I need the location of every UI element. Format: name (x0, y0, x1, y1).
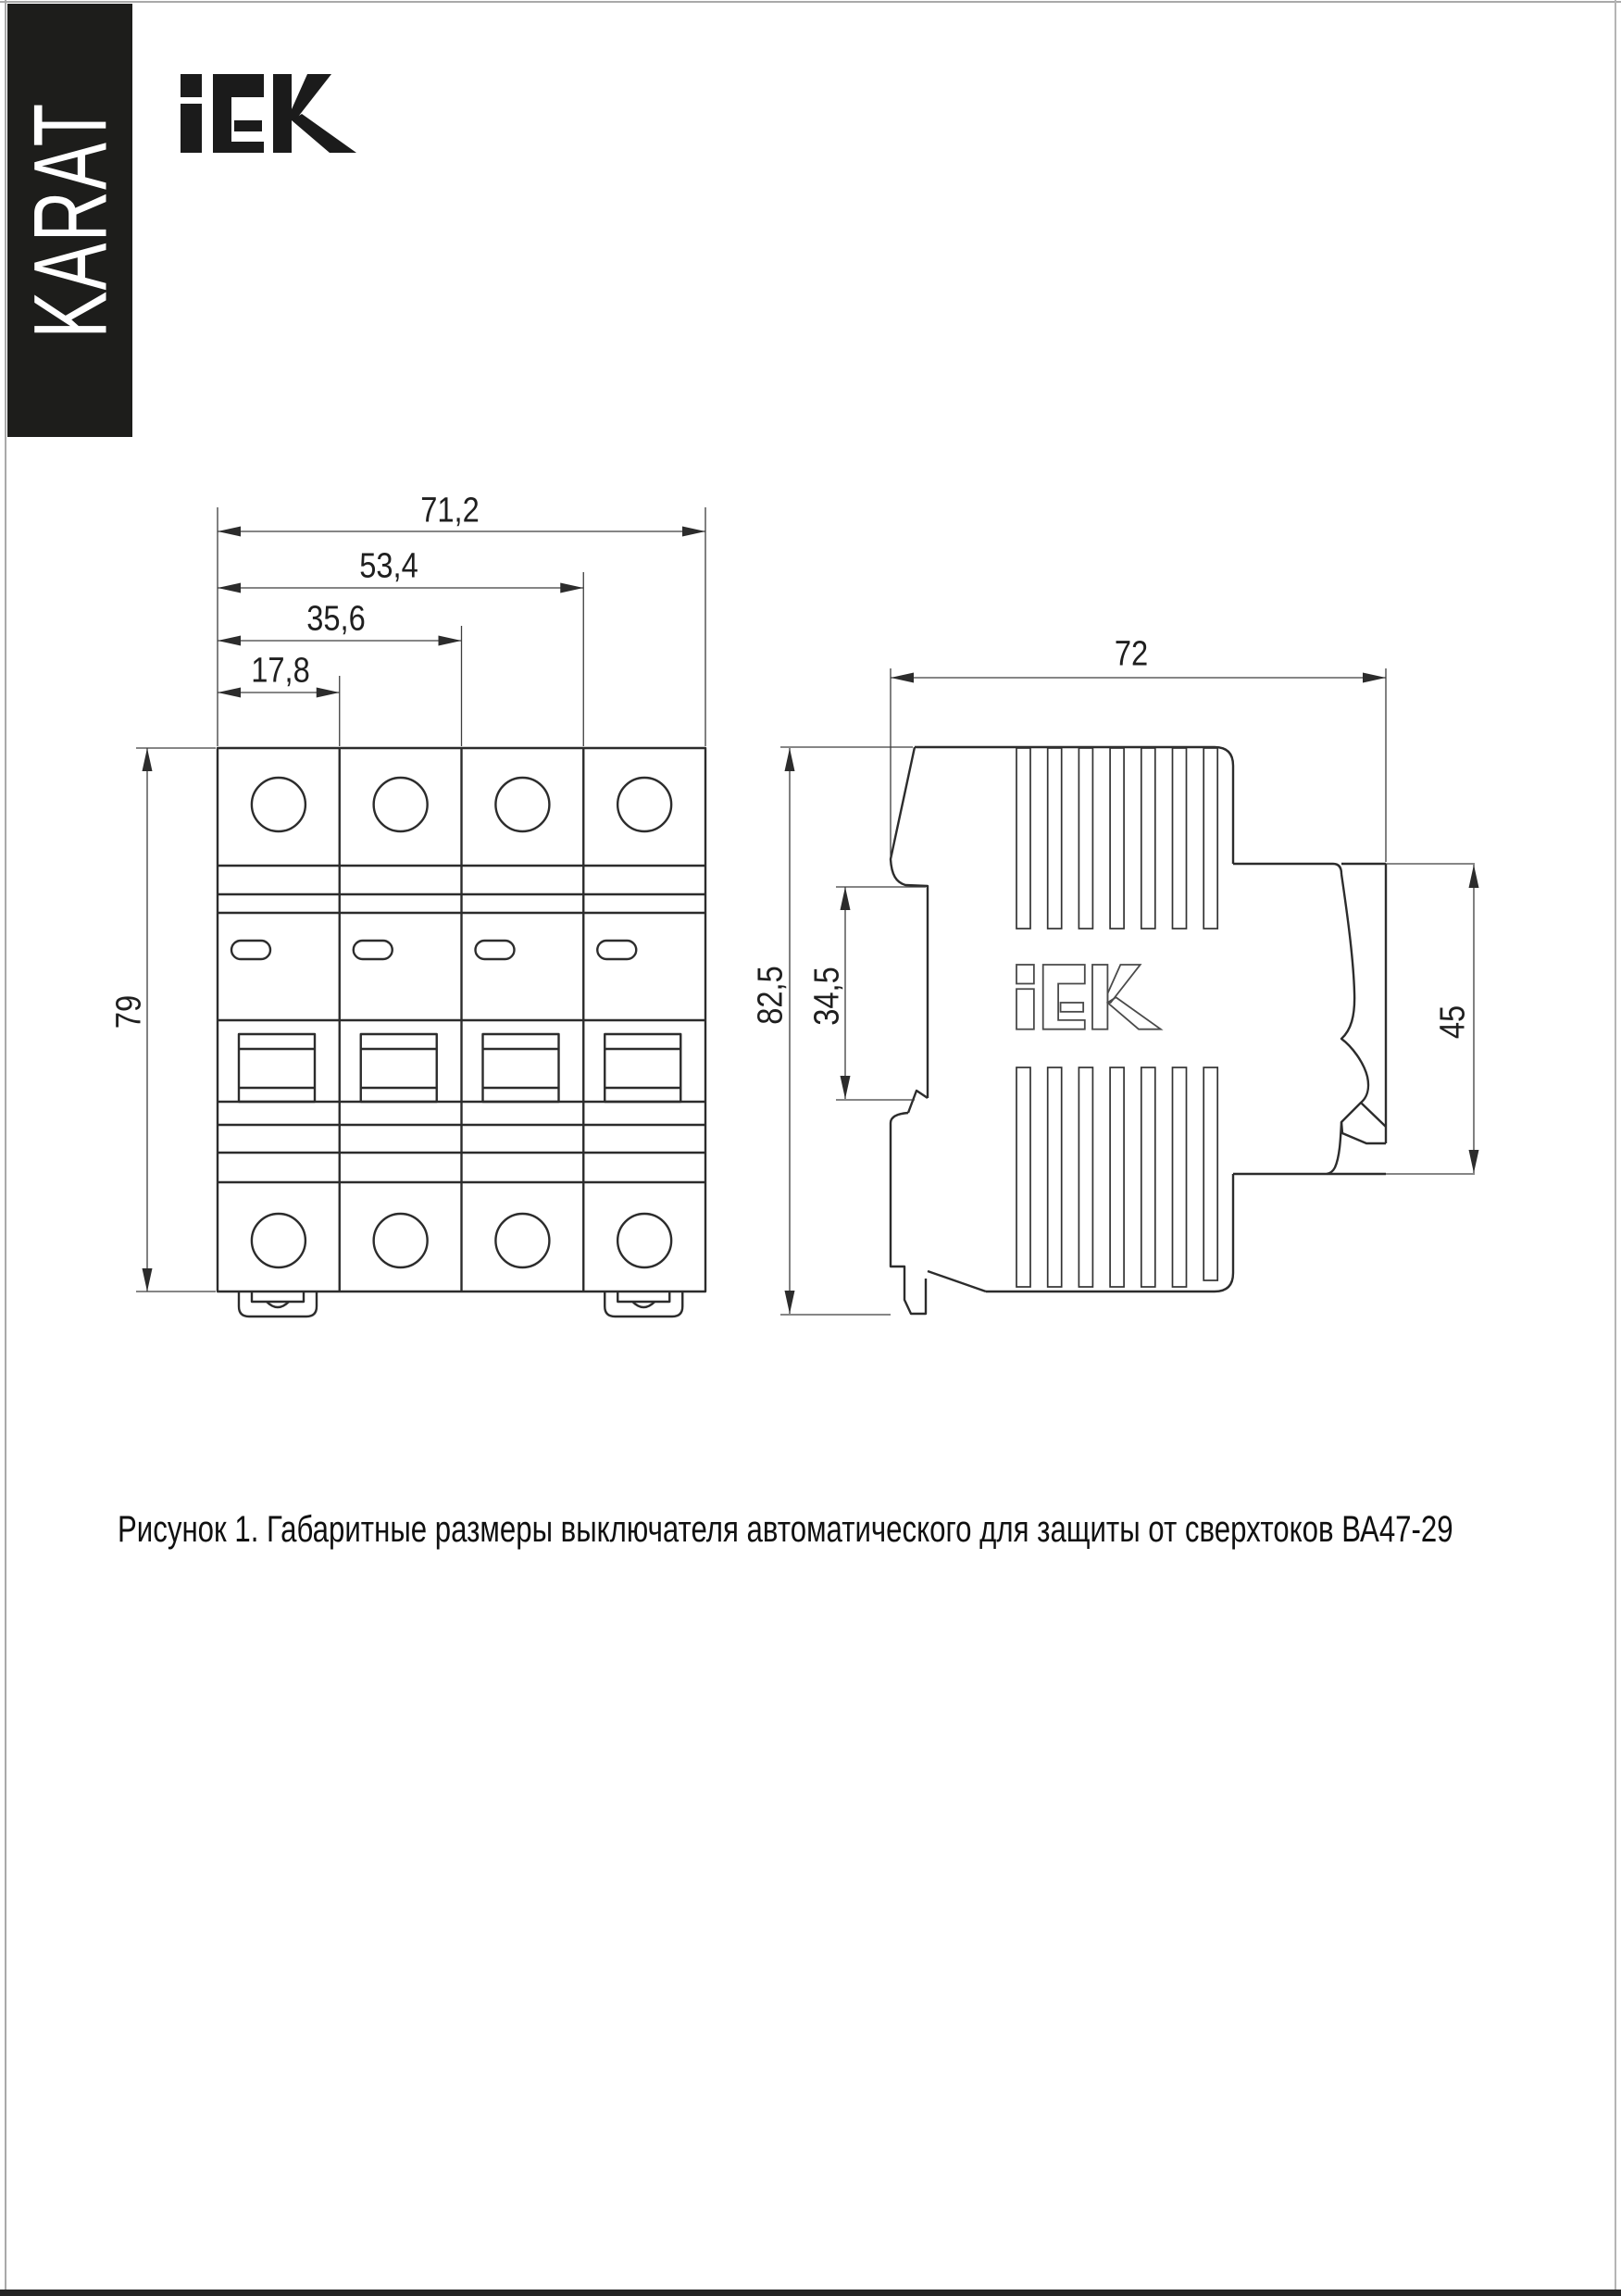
dim-label-height: 79 (110, 995, 150, 1029)
dim-label-width-total: 71,2 (420, 492, 480, 531)
side-view-dimension-arrows (785, 673, 1479, 1315)
side-view-dimension-lines (780, 668, 1475, 1315)
side-iek-logo (1016, 965, 1161, 1029)
front-view-dimension-lines (136, 507, 705, 1291)
datasheet-page: KARAT (0, 0, 1621, 2296)
vent-slots (1016, 748, 1217, 1287)
dimensional-drawing (0, 0, 1621, 2296)
dim-label-height-total: 82,5 (752, 966, 792, 1025)
dim-label-width-three: 53,4 (359, 547, 418, 587)
dim-label-front-height: 45 (1434, 1005, 1474, 1039)
dim-label-depth: 72 (1115, 635, 1148, 675)
dim-label-rail-slot: 34,5 (808, 967, 848, 1026)
dim-label-width-one: 17,8 (251, 652, 310, 692)
dim-label-width-two: 35,6 (306, 600, 366, 640)
side-view (780, 668, 1479, 1315)
front-view (136, 507, 705, 1316)
figure-caption: Рисунок 1. Габаритные размеры выключател… (118, 1509, 1453, 1551)
